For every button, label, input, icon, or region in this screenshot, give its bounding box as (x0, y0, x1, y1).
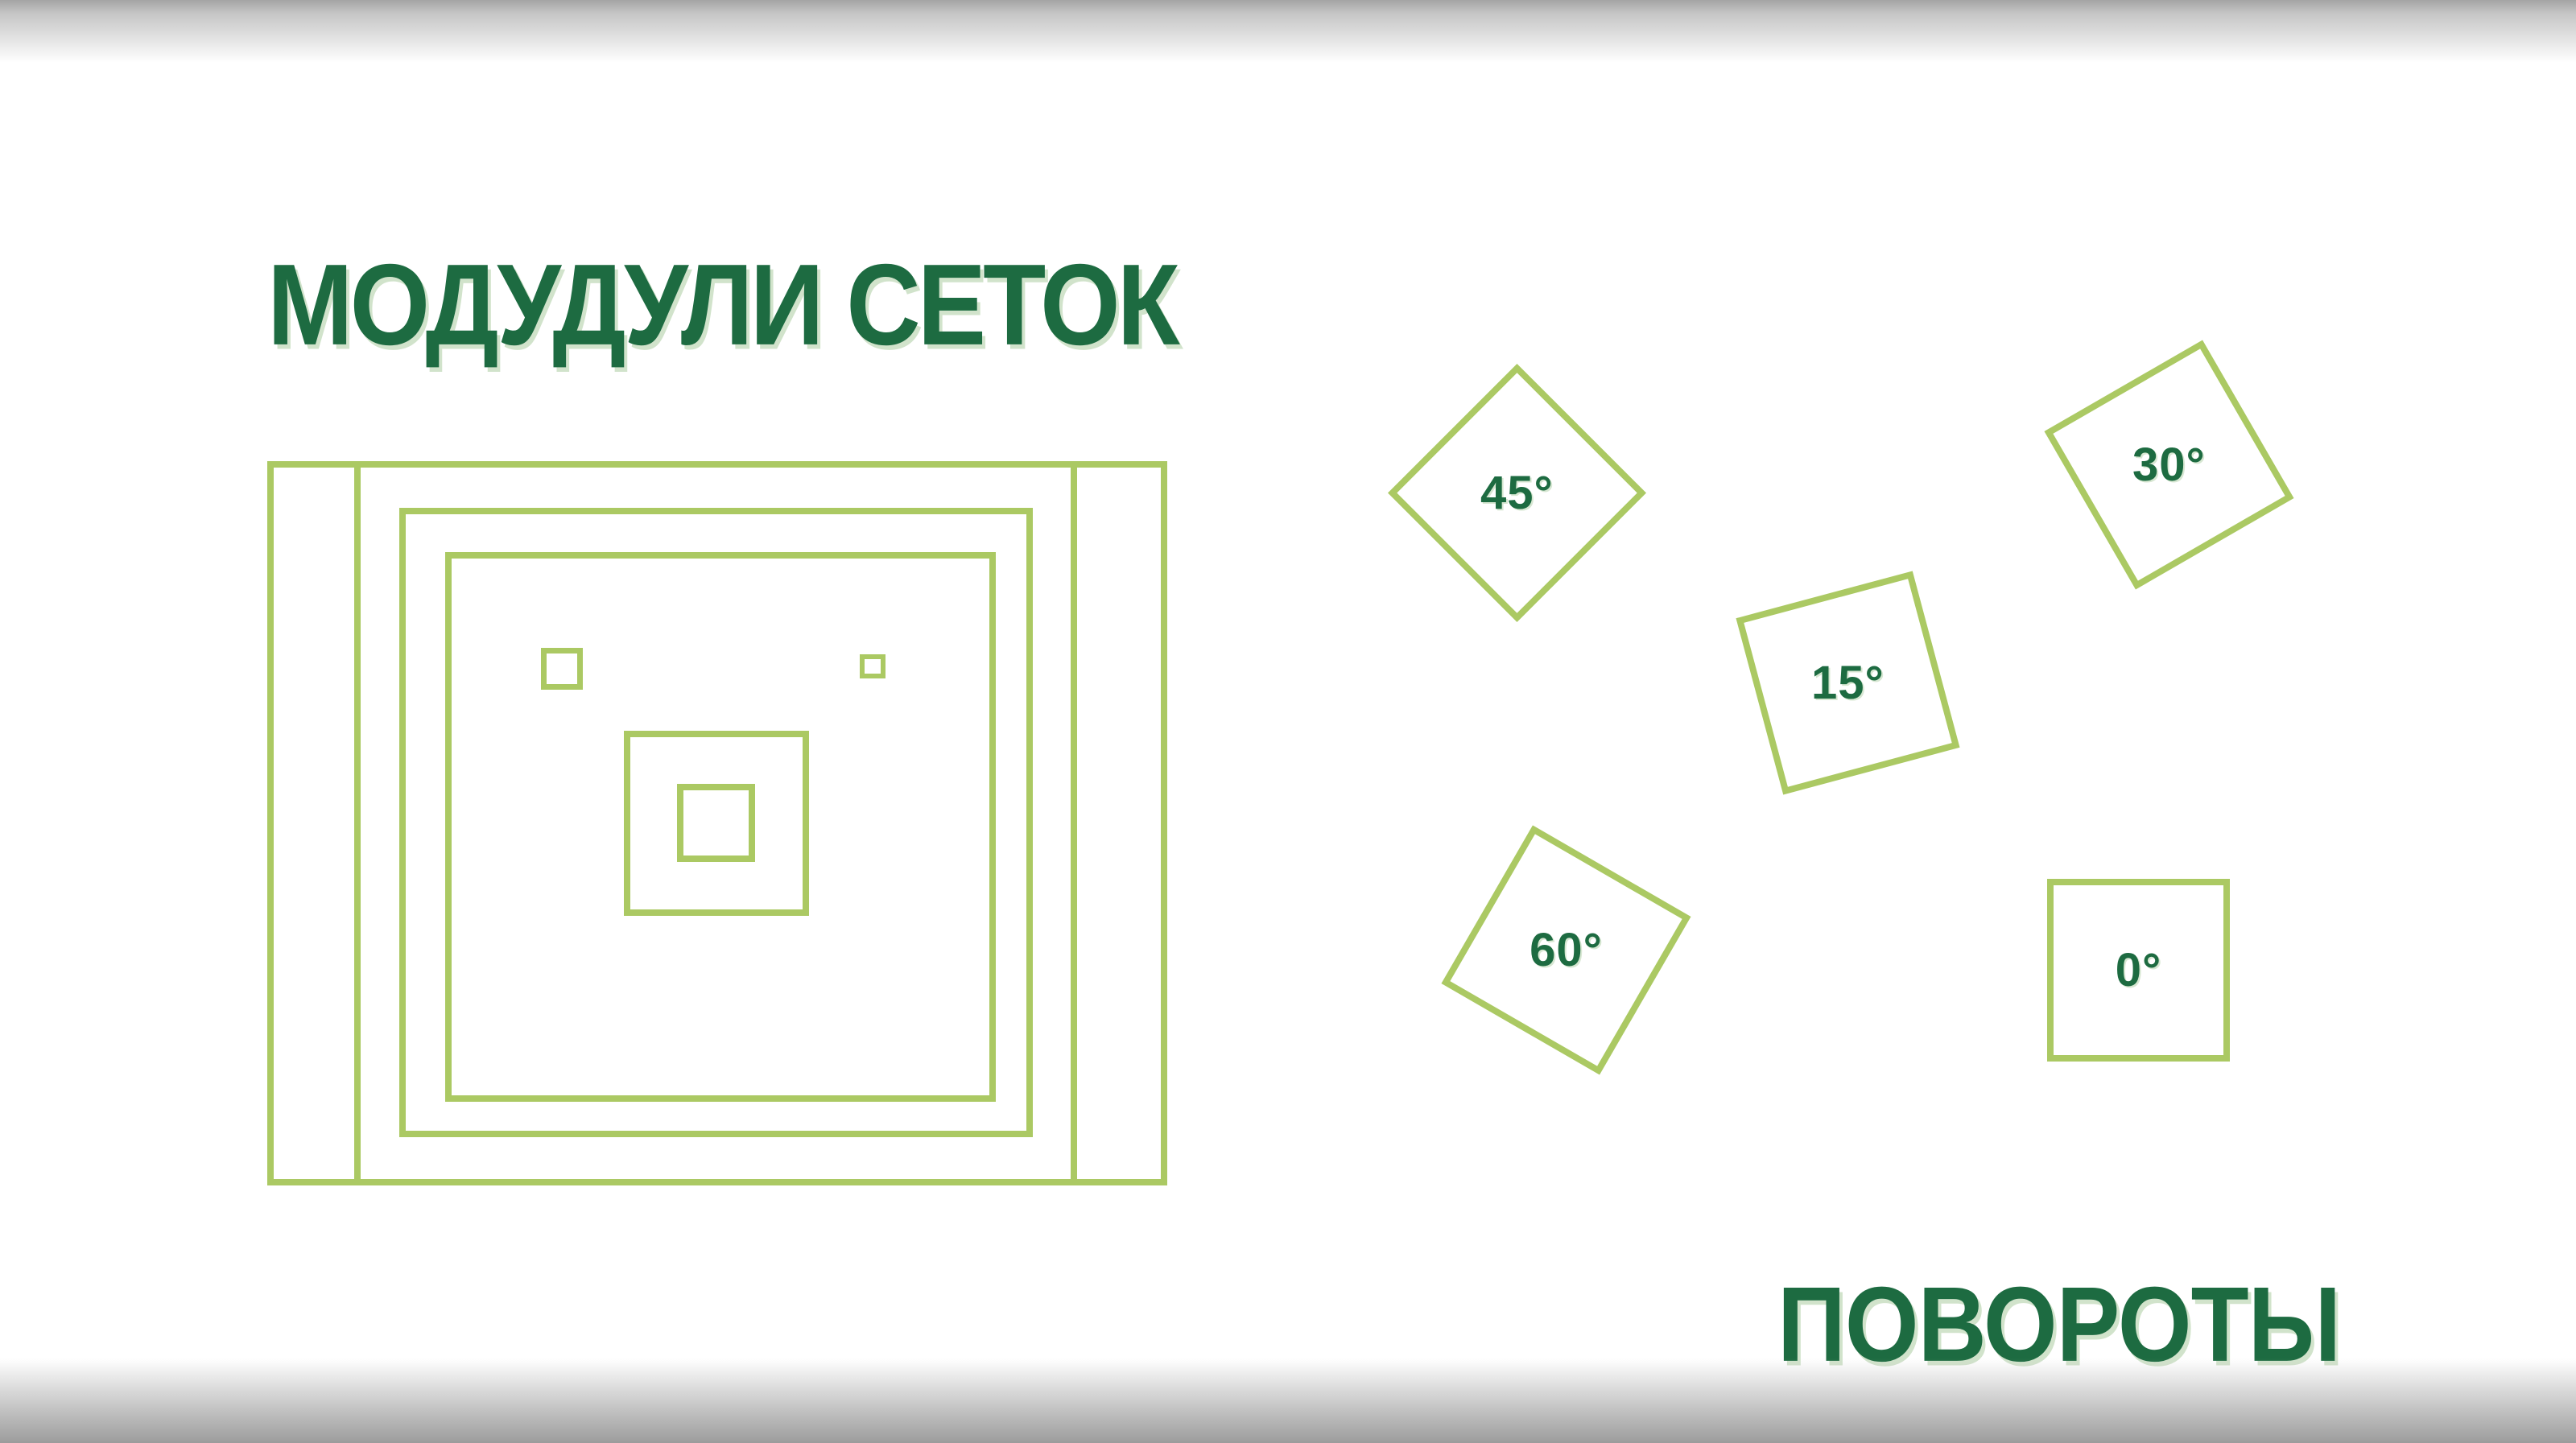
grid-center-inner-square (677, 784, 755, 862)
slide: МОДУДУЛИ СЕТОК 45° 30° 15° 60° 0° ПОВОРО… (0, 0, 2576, 1443)
rotated-square-15: 15° (1736, 571, 1959, 794)
grid-vertical-line-right (1071, 461, 1077, 1185)
bottom-edge-shadow (0, 1358, 2576, 1443)
rotated-square-0-label: 0° (2116, 943, 2161, 997)
rotated-square-30-label: 30° (2132, 438, 2206, 492)
rotated-square-30: 30° (2044, 340, 2293, 589)
grid-small-square (541, 648, 583, 690)
grid-vertical-line-left (354, 461, 361, 1185)
rotated-square-60-label: 60° (1529, 923, 1603, 977)
rotated-square-0: 0° (2047, 879, 2230, 1062)
rotated-square-15-label: 15° (1811, 656, 1885, 710)
grids-section-title: МОДУДУЛИ СЕТОК (267, 248, 1177, 363)
top-edge-shadow (0, 0, 2576, 63)
grid-tiny-square (860, 654, 885, 678)
rotated-square-60: 60° (1441, 825, 1690, 1074)
rotated-square-45-label: 45° (1480, 466, 1554, 520)
rotated-square-45: 45° (1388, 364, 1646, 622)
